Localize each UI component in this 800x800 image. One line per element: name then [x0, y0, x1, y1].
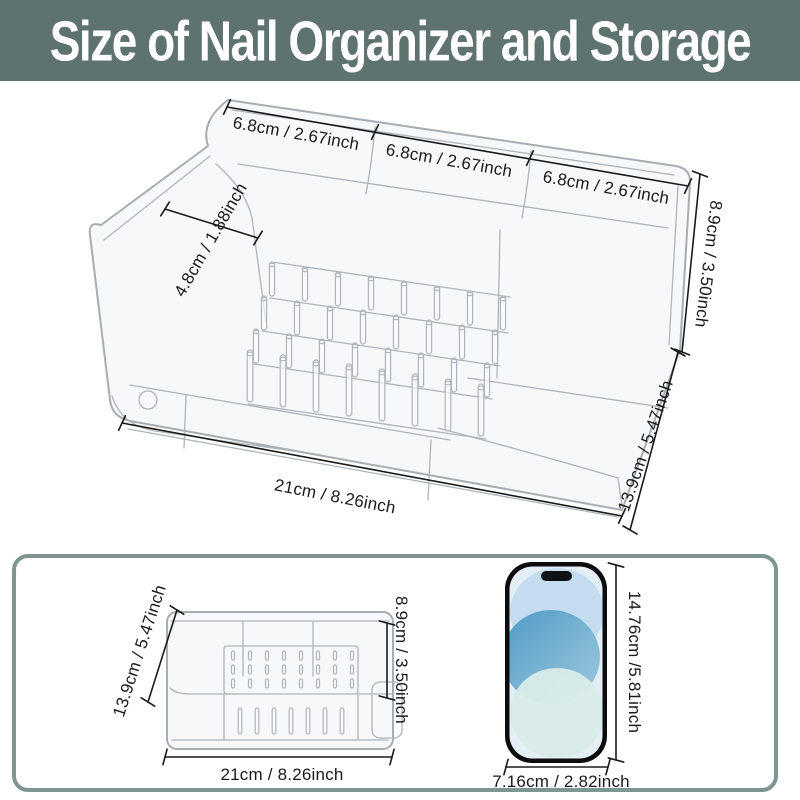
- phone-dim-label-height: 14.76cm /5.81inch: [624, 591, 644, 733]
- panel-dim-label-width: 21cm / 8.26inch: [220, 765, 343, 785]
- organizer-front-drawing: [167, 612, 402, 749]
- product-size-infographic: { "header": { "title": "Size of Nail Org…: [0, 0, 800, 800]
- phone-dim-label-width: 7.16cm / 2.82inch: [492, 772, 630, 792]
- phone-drawing: [502, 562, 607, 763]
- panel-dim-label-height: 8.9cm / 3.50inch: [391, 596, 411, 724]
- dynamic-island-pill: [541, 571, 572, 581]
- organizer-3d-drawing: [90, 100, 690, 517]
- phone-wallpaper-bubbles: [502, 568, 604, 758]
